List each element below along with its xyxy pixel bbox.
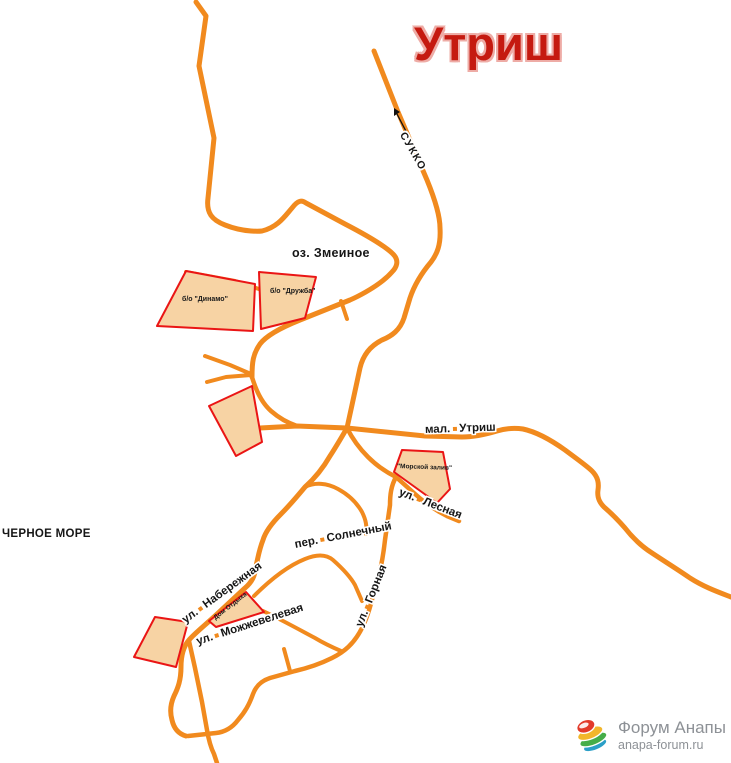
forum-site-url: anapa-forum.ru [618,738,726,752]
label-word-dot [320,537,325,542]
map-title: Утриш [414,16,563,71]
oz-zmeinoe-label: оз. Змеиное [292,247,370,260]
forum-watermark: Форум Анапы anapa-forum.ru [571,712,726,758]
chernoe-more-label: ЧЕРНОЕ МОРЕ [2,529,91,541]
dinamo-label: б/о "Динамо" [182,296,228,303]
gornaya-label: ул.Горная [355,564,390,629]
forum-logo-sphere-icon [571,712,611,758]
label-word-dot [365,604,370,609]
morskoy-zaliv-label: "Морской залив" [397,464,452,472]
sukko-label: СУККО [397,131,427,173]
label-word-dot [453,427,457,431]
lesnaya-label: ул.Лесная [397,487,463,522]
label-word-dot [214,633,219,638]
mozhzhevelevaya-label: ул.Можжевелевая [195,603,305,648]
utrish-map-page: { "title": {"text": "Утриш"}, "colors": … [0,0,731,763]
forum-name: Форум Анапы [618,718,726,738]
mal-utrish-label: мал.Утриш [425,423,496,437]
label-word-dot [198,606,204,612]
label-word-dot [417,497,422,502]
solnechny-label: пер.Солнечный [294,521,393,551]
druzhba-label: б/о "Дружба" [270,288,315,295]
label-layer: СУККОоз. ЗмеиноеЧЕРНОЕ МОРЕмал.Утришул.Л… [0,0,731,763]
